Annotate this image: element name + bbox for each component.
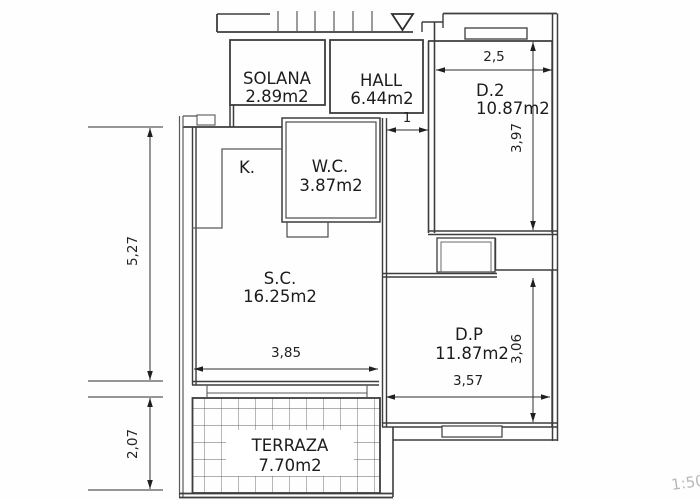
room-area-terraza: 7.70m2 [258,456,321,475]
d2-window [465,28,527,39]
dp-window [442,426,502,437]
entrance-marker-icon [392,14,413,30]
scale-note: 1:50 [670,471,700,494]
floor-plan-drawing: SOLANA 2.89m2 HALL 6.44m2 D.2 10.87m2 W.… [0,0,700,500]
dim-label-dp-depth: 3,06 [509,334,525,364]
sc-duct [197,115,215,125]
dim-label-dp-width: 3,57 [453,373,483,389]
room-area-sc: 16.25m2 [243,287,317,306]
room-label-terraza: TERRAZA [251,436,329,455]
dim-label-sc-width: 3,85 [271,345,301,361]
wardrobe-outline [437,238,495,272]
room-area-solana: 2.89m2 [245,87,308,106]
room-area-dp: 11.87m2 [435,344,509,363]
room-area-wc: 3.87m2 [299,176,362,195]
dim-label-d2-depth: 3,97 [509,123,525,153]
wardrobe-inner [441,242,491,272]
dim-label-hall-door: 1 [403,110,412,126]
room-area-hall: 6.44m2 [350,89,413,108]
room-label-solana: SOLANA [243,69,312,88]
room-label-sc: S.C. [264,269,296,288]
window-hatch-ticks [278,11,372,32]
room-label-dp: D.P [455,325,483,344]
room-area-d2: 10.87m2 [476,99,550,118]
kitchen-counter-outline [192,149,282,228]
floor-plan-sheet: SOLANA 2.89m2 HALL 6.44m2 D.2 10.87m2 W.… [0,0,700,500]
room-label-wc: W.C. [312,157,348,176]
room-label-kitchen: K. [239,158,255,177]
wc-duct [287,222,328,237]
dim-label-left-lower: 2,07 [125,429,141,459]
dim-label-left-upper: 5,27 [125,236,141,266]
room-label-d2: D.2 [476,81,504,100]
dim-label-d2-width: 2,5 [483,49,504,65]
room-label-hall: HALL [360,71,403,90]
